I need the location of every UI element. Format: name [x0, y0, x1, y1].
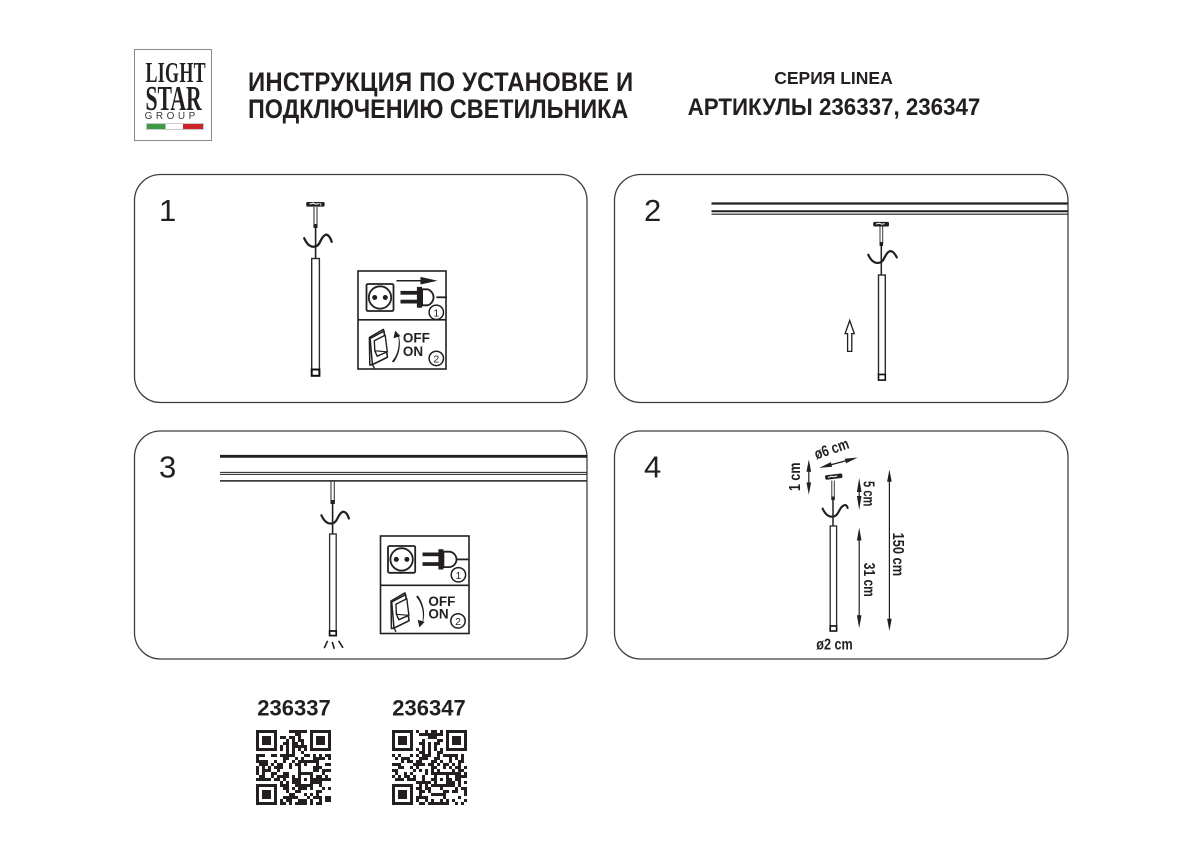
svg-text:2: 2: [455, 616, 461, 628]
svg-text:2: 2: [644, 193, 661, 228]
svg-text:236337: 236337: [257, 696, 330, 721]
svg-text:4: 4: [644, 450, 661, 485]
svg-text:31 cm: 31 cm: [860, 563, 877, 597]
svg-text:150 cm: 150 cm: [889, 533, 906, 577]
svg-text:3: 3: [159, 450, 176, 485]
svg-text:2: 2: [433, 354, 439, 366]
svg-text:1 cm: 1 cm: [787, 463, 804, 492]
svg-text:236347: 236347: [392, 696, 465, 721]
svg-text:ON: ON: [403, 344, 423, 359]
svg-text:ON: ON: [428, 606, 448, 621]
svg-text:1: 1: [433, 307, 439, 319]
svg-text:1: 1: [455, 570, 461, 582]
svg-text:1: 1: [159, 193, 176, 228]
svg-text:5 cm: 5 cm: [860, 481, 877, 507]
svg-text:ø2 cm: ø2 cm: [816, 637, 853, 654]
